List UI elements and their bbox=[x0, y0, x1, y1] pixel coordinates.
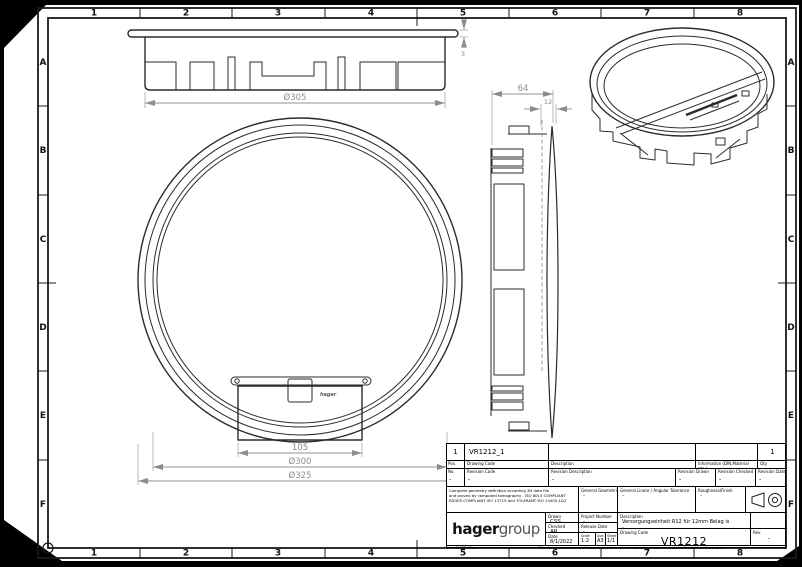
rev-cell: Rev. - bbox=[751, 529, 787, 545]
parts-drawing-code: VR1212_1 bbox=[465, 444, 549, 461]
checked-cell: Checked AR bbox=[546, 523, 579, 533]
description-cell: Description Versorgungseinheit R12 für 1… bbox=[618, 513, 751, 529]
grid-col-label: 4 bbox=[368, 9, 374, 19]
rev-value-drawn: - bbox=[676, 476, 716, 487]
grid-col-label: 3 bbox=[275, 9, 281, 19]
parts-header-information: Information (DIN,Material etc.) bbox=[696, 461, 758, 469]
company-logo: hagergroup bbox=[447, 513, 546, 545]
grid-col-label: 4 bbox=[368, 549, 374, 559]
grid-row-label: D bbox=[39, 323, 46, 333]
rev-header-no: No. bbox=[447, 469, 465, 476]
form-ref: A0007.03.a bbox=[447, 546, 475, 549]
size-value: A3 bbox=[596, 538, 605, 544]
rev-header-checked: Revision Checked bbox=[716, 469, 756, 476]
hatch-logo-text: hager bbox=[320, 392, 337, 398]
date-cell: Date 8/1/2022 bbox=[546, 533, 579, 545]
drawing-code-value: VR1212 bbox=[618, 535, 750, 545]
sheet-cell: Sheet 1/1 bbox=[606, 533, 618, 545]
rev-value-code: - bbox=[465, 476, 549, 487]
rev-value: - bbox=[751, 535, 787, 542]
parts-header-code: Drawing Code bbox=[465, 461, 549, 469]
title-block: 1 VR1212_1 1 Pos. Drawing Code Descripti… bbox=[446, 443, 786, 548]
grid-row-label: F bbox=[40, 500, 46, 510]
linear-tolerance-label: General Linear / Angular Tolerance bbox=[618, 487, 695, 493]
parts-qty: 1 bbox=[758, 444, 787, 461]
grid-col-label: 7 bbox=[644, 9, 650, 19]
grid-row-label: D bbox=[787, 323, 794, 333]
projection-symbol-icon bbox=[750, 491, 784, 509]
parts-description bbox=[549, 444, 696, 461]
grid-row-label: B bbox=[788, 146, 795, 156]
rev-header-date: Revision Date bbox=[756, 469, 787, 476]
grid-row-label: C bbox=[788, 235, 795, 245]
dim-label-hatch-width: 105 bbox=[292, 443, 308, 453]
dim-label-recess: 12 bbox=[544, 98, 552, 106]
dim-label-front-dia: Ø305 bbox=[284, 92, 307, 103]
grid-col-label: 5 bbox=[460, 9, 466, 19]
note-line: EDGES COMPLIANT ISO 13715 and TOLERANT I… bbox=[449, 499, 578, 504]
rev-cell-top bbox=[751, 513, 787, 529]
parts-header-description: Description bbox=[549, 461, 696, 469]
dim-label-flange-thickness: 3 bbox=[461, 50, 465, 58]
linear-tolerance-cell: General Linear / Angular Tolerance - bbox=[618, 487, 696, 513]
rev-value-description: - bbox=[549, 476, 676, 487]
project-cell: Project Number - bbox=[579, 513, 618, 523]
scale-cell: Scale 1:2 bbox=[579, 533, 596, 545]
dim-label-outer-dia: Ø325 bbox=[289, 470, 312, 481]
parts-header-pos: Pos. bbox=[447, 461, 465, 469]
grid-row-label: F bbox=[788, 500, 794, 510]
grid-col-label: 8 bbox=[737, 9, 743, 19]
roughness-cell: Roughness/Finish - bbox=[696, 487, 746, 513]
general-notes: Complete geometry definition according 3… bbox=[447, 487, 579, 513]
size-cell: Size A3 bbox=[596, 533, 606, 545]
rev-header-description: Revision Description bbox=[549, 469, 676, 476]
sheet-value: 1/1 bbox=[606, 538, 617, 544]
grid-col-label: 2 bbox=[183, 549, 189, 559]
projection-symbol-cell bbox=[746, 487, 787, 513]
release-cell: Release Date - bbox=[579, 523, 618, 533]
grid-row-label: A bbox=[788, 58, 795, 68]
linear-tolerance-value: - bbox=[618, 493, 695, 499]
scale-value: 1:2 bbox=[579, 538, 595, 544]
grid-col-label: 8 bbox=[737, 549, 743, 559]
grid-row-label: E bbox=[40, 411, 46, 421]
grid-row-label: E bbox=[788, 411, 794, 421]
grid-col-label: 1 bbox=[91, 549, 97, 559]
grid-col-label: 1 bbox=[91, 9, 97, 19]
dim-label-depth: 64 bbox=[518, 84, 529, 94]
grid-col-label: 3 bbox=[275, 549, 281, 559]
grid-col-label: 5 bbox=[460, 549, 466, 559]
property-note: This drawing is property of hager group,… bbox=[475, 546, 787, 549]
rev-value-date: - bbox=[756, 476, 787, 487]
parts-information bbox=[696, 444, 758, 461]
rev-value-checked: - bbox=[716, 476, 756, 487]
grid-row-label: C bbox=[40, 235, 47, 245]
grid-col-label: 6 bbox=[552, 549, 558, 559]
logo-group: group bbox=[499, 520, 540, 538]
grid-col-label: 7 bbox=[644, 549, 650, 559]
parts-pos: 1 bbox=[447, 444, 465, 461]
geometric-tolerance-cell: General Geometric Tolerance - bbox=[579, 487, 618, 513]
grid-row-label: A bbox=[40, 58, 47, 68]
geometric-tolerance-value: - bbox=[579, 493, 617, 499]
roughness-value: - bbox=[696, 493, 745, 499]
grid-col-label: 6 bbox=[552, 9, 558, 19]
drawn-cell: Drawn CSS bbox=[546, 513, 579, 523]
drawing-code-cell: Drawing Code VR1212 bbox=[618, 529, 751, 545]
footer-strip: A0007.03.a This drawing is property of h… bbox=[447, 545, 787, 549]
logo-hager: hager bbox=[452, 520, 499, 538]
rev-header-drawn: Revision Drawn bbox=[676, 469, 716, 476]
grid-row-label: B bbox=[40, 146, 47, 156]
parts-header-qty: Qty bbox=[758, 461, 787, 469]
dim-label-inner-dia: Ø300 bbox=[289, 456, 312, 467]
drawing-sheet: 1 2 3 4 5 6 7 8 1 2 3 4 5 6 7 8 A B C D … bbox=[0, 0, 802, 567]
grid-col-label: 2 bbox=[183, 9, 189, 19]
rev-value-no: - bbox=[447, 476, 465, 487]
rev-header-code: Revision Code bbox=[465, 469, 549, 476]
